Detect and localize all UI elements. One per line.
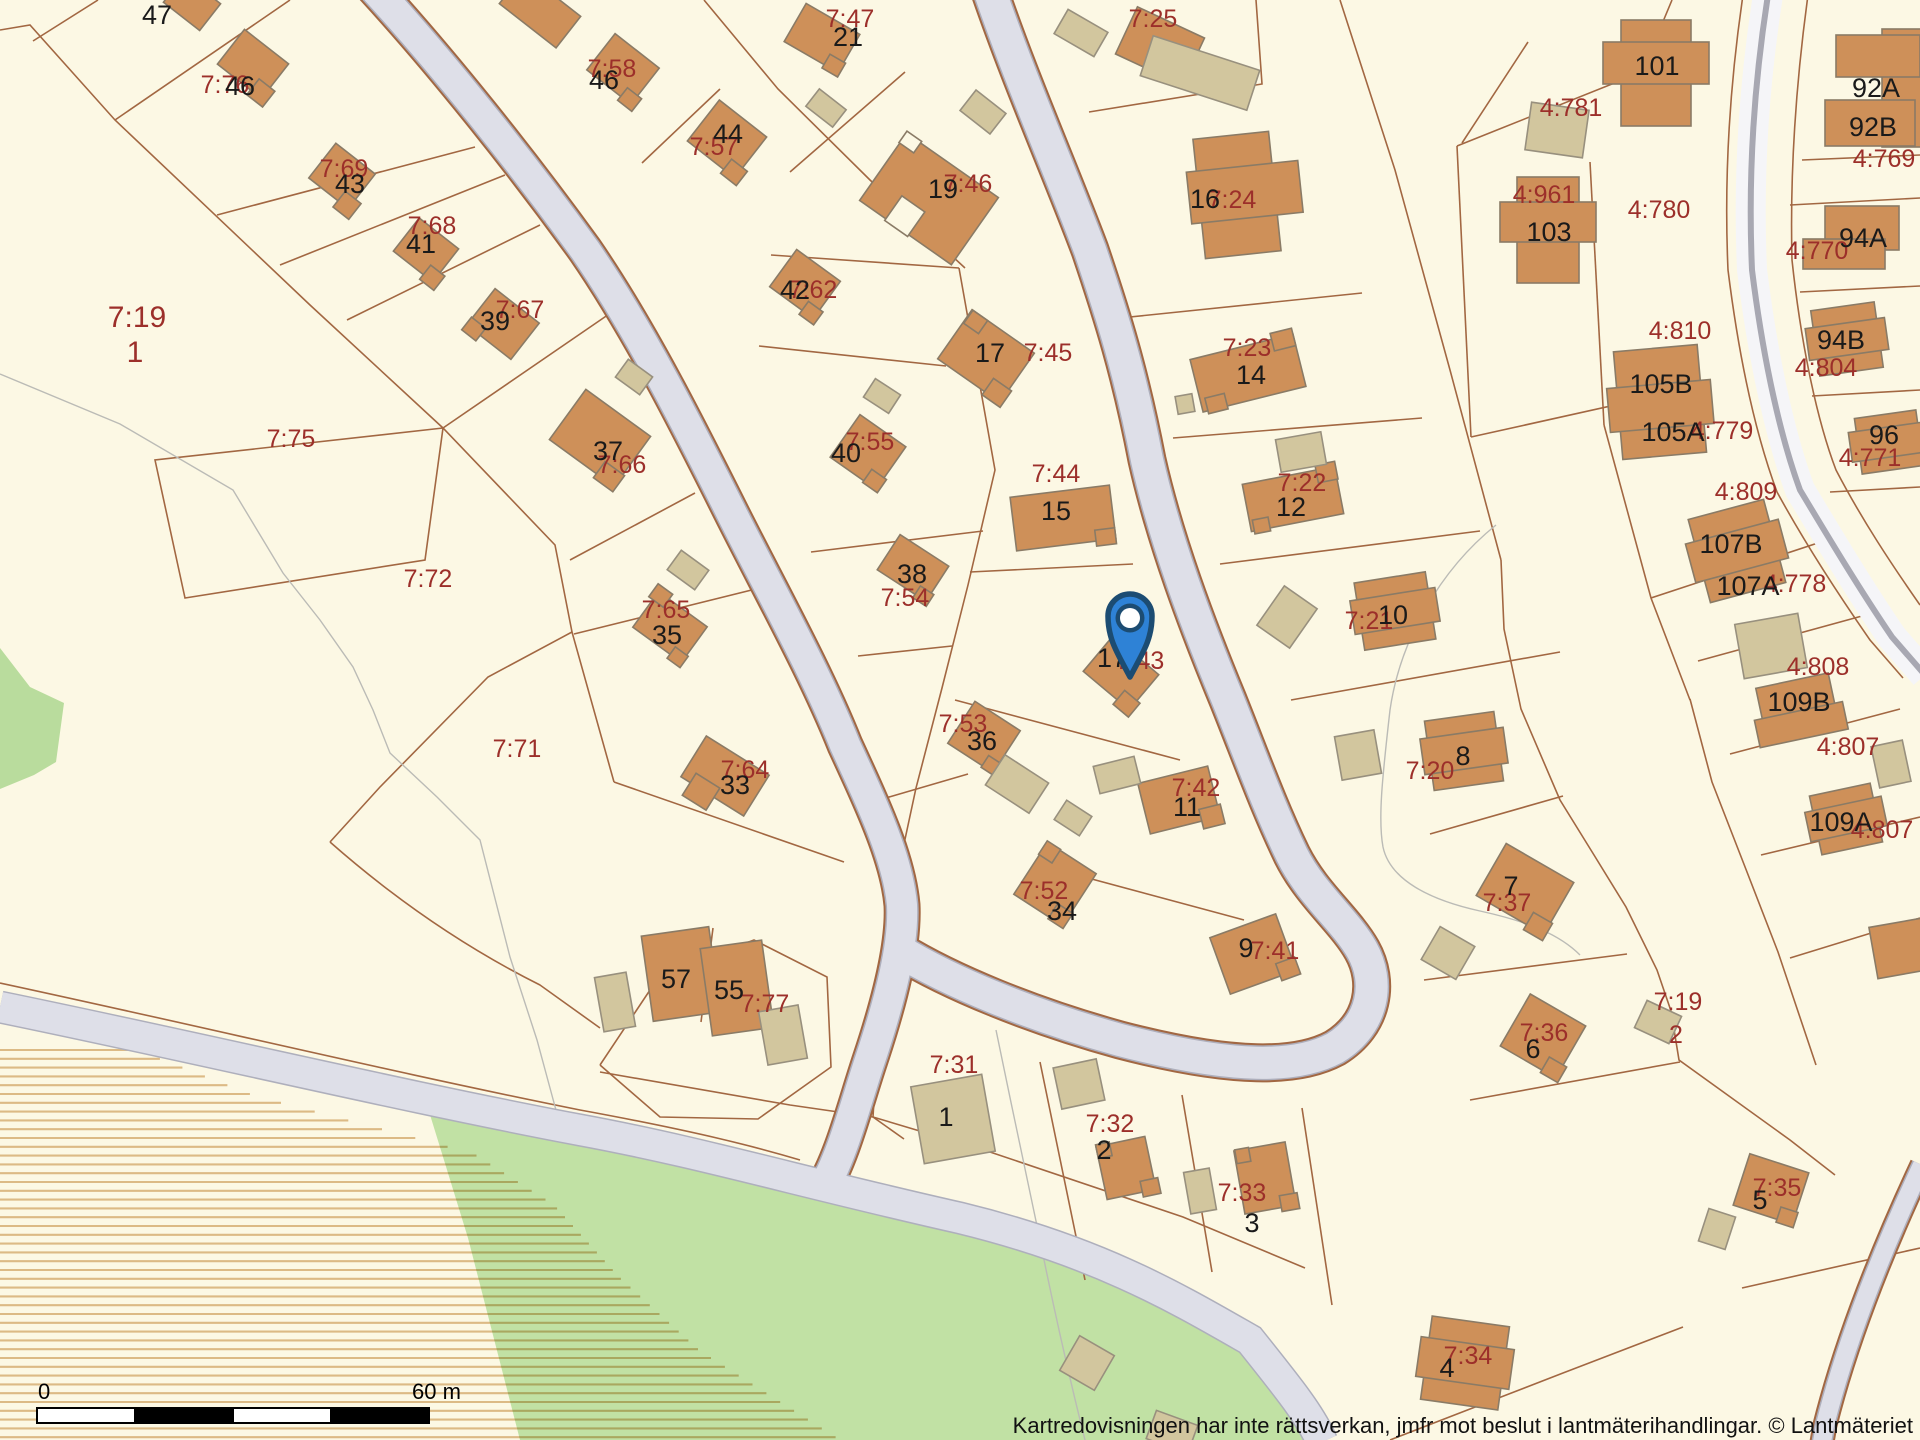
svg-text:46: 46: [589, 65, 619, 95]
svg-text:12: 12: [1276, 492, 1306, 522]
svg-text:46: 46: [225, 71, 255, 101]
svg-text:7:33: 7:33: [1218, 1179, 1267, 1207]
svg-text:14: 14: [1236, 360, 1266, 390]
svg-text:37: 37: [593, 436, 623, 466]
svg-text:7:25: 7:25: [1129, 5, 1178, 33]
svg-text:7:19: 7:19: [1654, 988, 1703, 1016]
svg-text:103: 103: [1526, 217, 1571, 247]
svg-text:4:808: 4:808: [1787, 653, 1850, 681]
svg-text:43: 43: [335, 169, 365, 199]
svg-text:92A: 92A: [1852, 73, 1900, 103]
svg-text:38: 38: [897, 559, 927, 589]
svg-text:4:961: 4:961: [1513, 181, 1576, 209]
svg-text:10: 10: [1378, 600, 1408, 630]
svg-text:109B: 109B: [1767, 687, 1830, 717]
svg-text:5: 5: [1752, 1185, 1767, 1215]
svg-text:7:23: 7:23: [1223, 334, 1272, 362]
svg-text:1: 1: [127, 336, 144, 369]
svg-text:7:31: 7:31: [930, 1051, 979, 1079]
svg-text:4:809: 4:809: [1715, 478, 1778, 506]
svg-text:6: 6: [1525, 1034, 1540, 1064]
svg-text:11: 11: [1173, 792, 1201, 822]
svg-text:7:75: 7:75: [267, 425, 316, 453]
svg-text:3: 3: [1244, 1208, 1259, 1238]
svg-text:94B: 94B: [1817, 325, 1865, 355]
svg-text:41: 41: [406, 229, 436, 259]
svg-text:4: 4: [1439, 1353, 1454, 1383]
svg-text:21: 21: [833, 22, 863, 52]
svg-text:8: 8: [1455, 741, 1470, 771]
svg-text:7:72: 7:72: [404, 565, 453, 593]
svg-text:15: 15: [1041, 496, 1071, 526]
svg-text:4:804: 4:804: [1795, 354, 1858, 382]
svg-text:7:32: 7:32: [1086, 1110, 1135, 1138]
svg-text:107A: 107A: [1716, 571, 1779, 601]
svg-text:4:810: 4:810: [1649, 317, 1712, 345]
svg-text:92B: 92B: [1849, 112, 1897, 142]
svg-text:7:41: 7:41: [1251, 937, 1300, 965]
svg-text:47: 47: [142, 0, 172, 30]
svg-text:44: 44: [713, 119, 743, 149]
svg-text:4:807: 4:807: [1817, 733, 1880, 761]
svg-text:55: 55: [714, 975, 744, 1005]
svg-text:36: 36: [967, 726, 997, 756]
svg-text:105A: 105A: [1641, 417, 1704, 447]
svg-text:7:19: 7:19: [108, 301, 166, 334]
svg-text:4:780: 4:780: [1628, 196, 1691, 224]
svg-text:7:45: 7:45: [1024, 339, 1073, 367]
svg-text:7: 7: [1503, 871, 1518, 901]
svg-text:7:77: 7:77: [741, 990, 790, 1018]
svg-text:105B: 105B: [1629, 369, 1692, 399]
svg-text:33: 33: [720, 770, 750, 800]
svg-text:42: 42: [780, 275, 810, 305]
svg-text:17: 17: [975, 338, 1005, 368]
svg-text:0: 0: [38, 1379, 50, 1404]
svg-text:96: 96: [1869, 420, 1899, 450]
svg-text:35: 35: [652, 620, 682, 650]
svg-text:60 m: 60 m: [412, 1379, 461, 1404]
svg-text:4:769: 4:769: [1853, 145, 1916, 173]
svg-text:94A: 94A: [1839, 223, 1887, 253]
svg-text:109A: 109A: [1809, 807, 1872, 837]
svg-text:4:781: 4:781: [1540, 94, 1603, 122]
svg-text:16: 16: [1190, 184, 1220, 214]
svg-text:9: 9: [1238, 933, 1253, 963]
svg-text:2: 2: [1669, 1021, 1683, 1049]
svg-text:57: 57: [661, 964, 691, 994]
svg-text:19: 19: [928, 174, 958, 204]
svg-text:7:20: 7:20: [1406, 757, 1455, 785]
svg-text:107B: 107B: [1699, 529, 1762, 559]
svg-text:2: 2: [1096, 1135, 1111, 1165]
svg-text:7:71: 7:71: [493, 735, 542, 763]
svg-text:34: 34: [1047, 896, 1077, 926]
svg-text:7:44: 7:44: [1032, 460, 1081, 488]
svg-text:Kartredovisningen har inte rät: Kartredovisningen har inte rättsverkan, …: [1013, 1413, 1913, 1438]
svg-text:40: 40: [831, 438, 861, 468]
svg-text:1: 1: [938, 1102, 953, 1132]
svg-text:39: 39: [480, 306, 510, 336]
svg-text:101: 101: [1634, 51, 1679, 81]
